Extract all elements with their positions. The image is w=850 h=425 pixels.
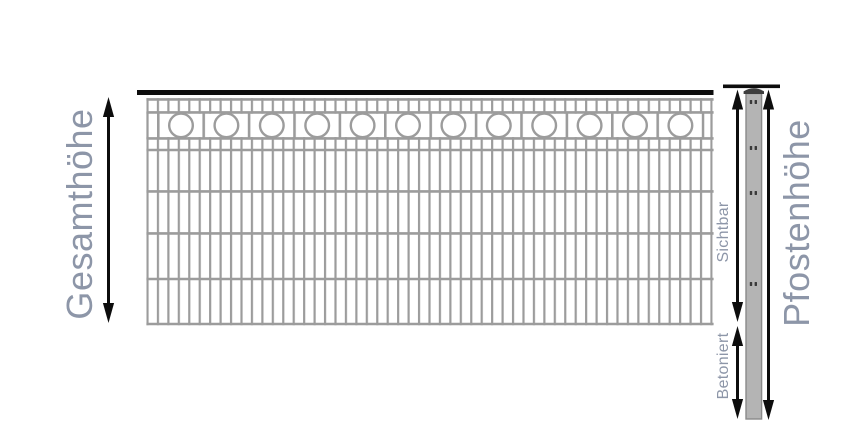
post-height-label: Pfostenhöhe	[779, 119, 815, 327]
post-height-arrow	[763, 90, 774, 421]
post-cap	[744, 88, 764, 94]
arrow-down-head	[732, 302, 743, 322]
total-height-label: Gesamthöhe	[62, 108, 98, 319]
concreted-depth-label: Betoniert	[716, 333, 732, 400]
arrow-down-head	[763, 400, 774, 420]
total-height-arrow	[103, 97, 114, 323]
arrow-down-head	[732, 399, 743, 419]
fence-top-bar	[137, 90, 714, 95]
arrow-shaft	[736, 343, 739, 402]
visible-height-label: Sichtbar	[716, 201, 732, 262]
concreted-depth-arrow	[732, 326, 743, 419]
arrow-shaft	[767, 107, 770, 404]
fence-dimension-diagram: Gesamthöhe Sichtbar Betoniert Pfostenhöh…	[0, 0, 850, 425]
post-top-line	[723, 85, 780, 89]
visible-height-arrow	[732, 90, 743, 323]
post-body	[746, 94, 762, 420]
fence-post	[744, 88, 764, 419]
arrow-down-head	[103, 303, 114, 323]
arrow-shaft	[107, 114, 110, 306]
arrow-shaft	[736, 107, 739, 306]
